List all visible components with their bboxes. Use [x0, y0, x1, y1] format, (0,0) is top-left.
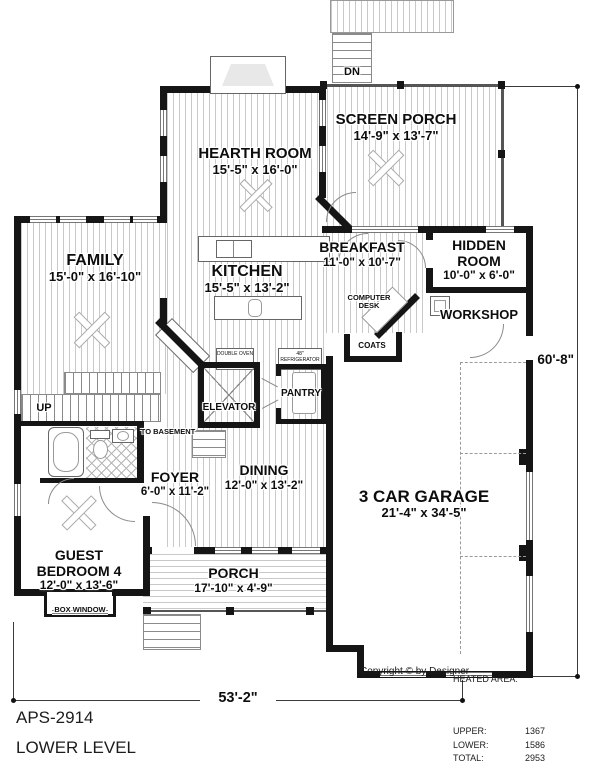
window [215, 547, 241, 554]
porch-post [498, 150, 505, 158]
computer-desk-label: COMPUTER DESK [338, 294, 400, 311]
stairs-up-label: UP [24, 402, 64, 414]
garage-bay-post [519, 545, 533, 561]
porch-post [226, 607, 234, 615]
wall [160, 86, 167, 222]
room-name: PORCH [208, 565, 259, 581]
garage-label: 3 CAR GARAGE 21'-4" x 34'-5" [340, 487, 508, 521]
wall [426, 287, 533, 293]
window [526, 576, 533, 632]
dimension-connector [533, 676, 577, 677]
porch-post [306, 607, 314, 615]
ceiling-fan [58, 492, 100, 534]
window [30, 216, 56, 223]
hearth-room-label: HEARTH ROOM 15'-5" x 16'-0" [180, 146, 330, 177]
room-name: BREAKFAST [319, 239, 405, 255]
to-basement-label: TO BASEMENT [138, 428, 198, 436]
dimension-dot [575, 84, 580, 89]
dimension-dot [460, 698, 465, 703]
window [252, 547, 278, 554]
room-dims: 15'-5" x 16'-0" [180, 163, 330, 178]
dimension-line-right [577, 86, 578, 676]
window [526, 472, 533, 540]
coats-label: COATS [346, 342, 398, 351]
window [60, 216, 86, 223]
window [486, 226, 514, 233]
front-door-gap [152, 547, 194, 554]
wall [198, 422, 260, 428]
garage-bay-post [519, 449, 533, 465]
foyer-label: FOYER 6'-0" x 11'-2" [134, 470, 216, 499]
window [352, 226, 418, 233]
room-name: WORKSHOP [440, 307, 518, 322]
dimension-dot [11, 698, 16, 703]
wall [276, 419, 326, 424]
dimension-dot [575, 674, 580, 679]
porch-edge [143, 610, 333, 612]
pantry-label: PANTRY [272, 388, 330, 399]
wall [143, 516, 150, 596]
heated-area-row-value: 1586 [505, 740, 545, 750]
plan-id: APS-2914 [16, 708, 94, 728]
dining-label: DINING 12'-0" x 13'-2" [208, 463, 320, 492]
room-dims: 10'-0" x 6'-0" [432, 269, 526, 282]
guest-bedroom-label: GUEST BEDROOM 4 12'-0" x 13'-6" [18, 548, 140, 593]
overall-width-label: 53'-2" [200, 690, 276, 706]
window [14, 484, 21, 516]
ceiling-fan [236, 176, 276, 216]
window [133, 216, 157, 223]
room-dims: 14'-9" x 13'-7" [316, 129, 476, 144]
dimension-connector [505, 86, 577, 87]
refrigerator-label: 48" REFRIGERATOR [278, 352, 322, 363]
overall-depth-label: 60'-8" [520, 352, 574, 367]
family-label: FAMILY 15'-0" x 16'-10" [22, 252, 168, 284]
stairs-up [64, 372, 161, 394]
room-name: KITCHEN [211, 263, 282, 280]
heated-area-row-label: LOWER: [453, 740, 489, 750]
garage-bay-line [460, 556, 526, 557]
garage-bay-line [460, 362, 526, 363]
bath-sink-bowl [117, 431, 129, 441]
feature-name: COATS [358, 341, 385, 350]
room-dims: 15'-5" x 13'-2" [176, 281, 318, 296]
wall [326, 356, 333, 652]
dimension-connector [13, 622, 14, 700]
heated-area-title: HEATED AREA: [453, 674, 518, 684]
garage-bay-line [460, 453, 526, 454]
fireplace-firebox [222, 64, 274, 86]
screen-porch-wall-top [322, 84, 504, 87]
ceiling-fan [364, 146, 408, 190]
box-window-label: BOX WINDOW [46, 606, 114, 614]
bedroom-door-arc [99, 486, 135, 522]
heated-area-row-value: 1367 [505, 726, 545, 736]
window [160, 110, 167, 136]
room-name: SCREEN PORCH [336, 111, 457, 128]
workshop-label: WORKSHOP [420, 308, 538, 323]
wall [14, 421, 144, 426]
toilet [90, 430, 110, 439]
heated-area-row-label: TOTAL: [453, 753, 484, 761]
elevator-cab [204, 368, 254, 422]
room-name: HEARTH ROOM [198, 145, 311, 162]
screen-porch-label: SCREEN PORCH 14'-9" x 13'-7" [316, 112, 476, 143]
room-name: FOYER [151, 469, 199, 485]
wall [276, 364, 326, 369]
room-dims: 17'-10" x 4'-9" [166, 582, 301, 595]
heated-area-row-value: 2953 [505, 753, 545, 761]
hidden-room-label: HIDDEN ROOM 10'-0" x 6'-0" [432, 238, 526, 283]
plan-level: LOWER LEVEL [16, 738, 136, 758]
feature-name: COMPUTER DESK [348, 293, 391, 310]
porch-post [498, 81, 505, 89]
feature-name: BOX WINDOW [54, 605, 105, 614]
room-dims: 15'-0" x 16'-10" [22, 270, 168, 285]
room-name: GUEST BEDROOM 4 [37, 547, 122, 579]
window [104, 216, 130, 223]
room-name: FAMILY [66, 252, 123, 269]
floor-plan: DN UP [0, 0, 600, 761]
porch-steps [143, 614, 201, 650]
porch-post [397, 81, 404, 89]
room-dims: 12'-0" x 13'-6" [18, 579, 140, 592]
kitchen-sink [216, 240, 252, 258]
ceiling-fan [70, 308, 114, 352]
room-name: HIDDEN ROOM [452, 237, 506, 269]
wall [254, 362, 260, 428]
porch-label: PORCH 17'-10" x 4'-9" [166, 566, 301, 595]
window [160, 156, 167, 182]
deck-stairs-dn-label: DN [330, 66, 374, 78]
wall [276, 364, 281, 376]
elevator-label: ELEVATOR [192, 402, 266, 413]
room-name: DINING [240, 462, 289, 478]
bathtub-basin [53, 432, 79, 472]
room-dims: 11'-0" x 10'-7" [292, 256, 432, 269]
window [14, 390, 21, 414]
toilet-bowl [93, 440, 108, 459]
workshop-door-arc [470, 324, 504, 358]
room-name: 3 CAR GARAGE [359, 487, 489, 506]
room-dims: 21'-4" x 34'-5" [340, 506, 508, 521]
deck-floor [330, 0, 454, 33]
window [292, 547, 320, 554]
wall [40, 478, 144, 483]
room-dims: 6'-0" x 11'-2" [134, 486, 216, 499]
room-dims: 12'-0" x 13'-2" [208, 479, 320, 492]
breakfast-label: BREAKFAST 11'-0" x 10'-7" [292, 240, 432, 269]
wall [276, 408, 281, 424]
double-oven-label: DOUBLE OVEN [216, 352, 254, 358]
heated-area-row-label: UPPER: [453, 726, 487, 736]
island-sink [248, 299, 262, 317]
kitchen-sink-divider [233, 241, 234, 257]
wall [344, 356, 402, 362]
